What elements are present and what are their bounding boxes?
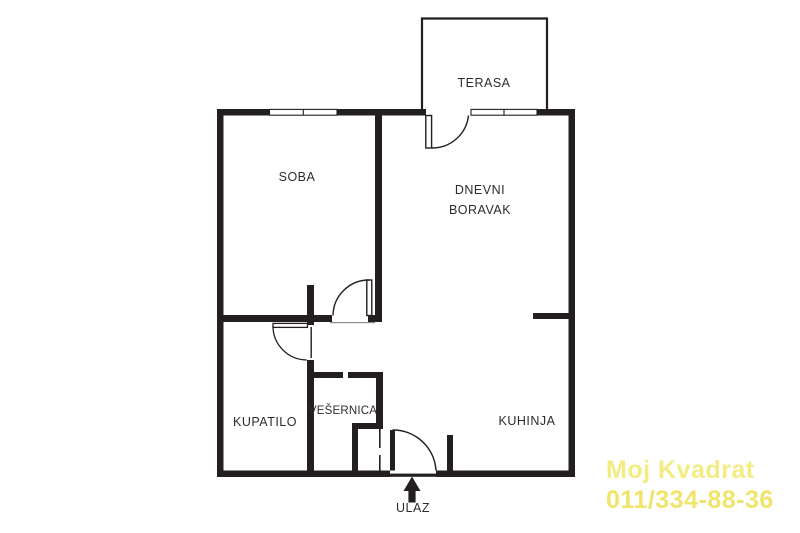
room-label-dnevni-boravak-line2: BORAVAK <box>449 203 511 217</box>
soba-window <box>270 109 338 115</box>
watermark: Moj Kvadrat 011/334-88-36 <box>606 455 774 515</box>
room-label-vesernica: VEŠERNICA <box>309 405 377 417</box>
room-label-soba: SOBA <box>279 170 316 184</box>
floorplan-drawing <box>0 0 800 533</box>
room-label-dnevni-boravak-line1: DNEVNI <box>455 183 505 197</box>
room-label-terasa: TERASA <box>457 76 510 90</box>
terrace-outline <box>422 19 547 112</box>
balcony-door <box>426 116 469 149</box>
bathroom-door <box>273 323 308 360</box>
floorplan-canvas: TERASA SOBA DNEVNI BORAVAK KUPATILO VEŠE… <box>0 0 800 533</box>
room-label-kupatilo: KUPATILO <box>233 415 297 429</box>
room-label-kuhinja: KUHINJA <box>499 414 556 428</box>
watermark-brand: Moj Kvadrat <box>606 455 774 485</box>
entrance-door <box>390 430 436 471</box>
hallway-threshold-line <box>330 322 375 323</box>
entrance-arrow-icon <box>404 477 421 503</box>
soba-door <box>333 280 372 316</box>
entrance-label: ULAZ <box>396 501 430 515</box>
terrace-window <box>471 109 537 115</box>
watermark-phone: 011/334-88-36 <box>606 485 774 515</box>
